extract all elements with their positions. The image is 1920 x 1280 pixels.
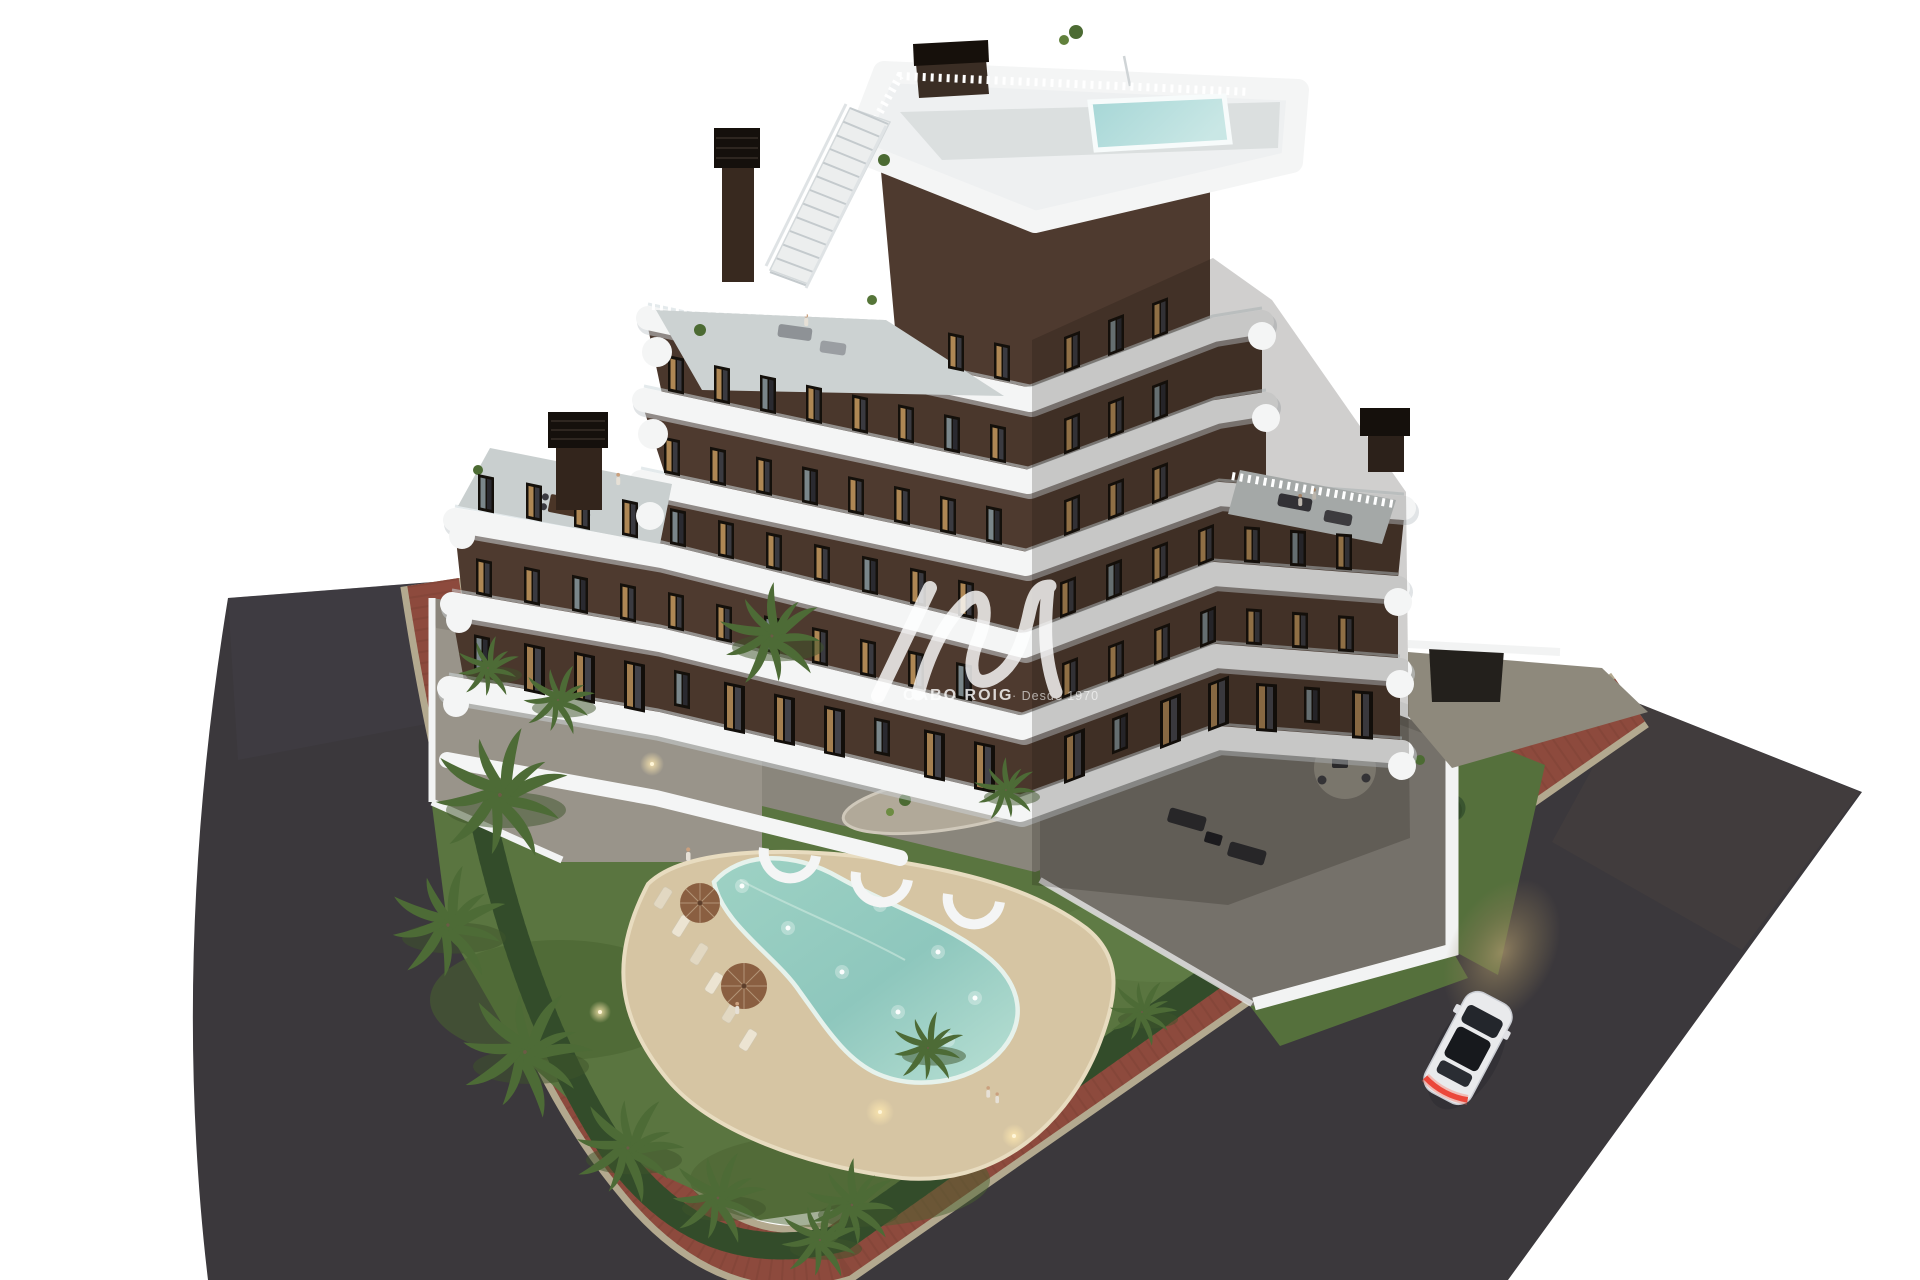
window: [824, 705, 845, 757]
window: [990, 424, 1006, 463]
window: [622, 499, 638, 538]
roof-plant: [878, 154, 890, 166]
window: [774, 694, 795, 746]
watermark-brand: CABO ROIG: [903, 687, 1013, 704]
window: [710, 447, 726, 486]
window: [664, 437, 680, 476]
window: [724, 682, 745, 734]
window: [806, 385, 822, 424]
window: [624, 660, 645, 712]
window: [860, 639, 876, 678]
window: [620, 583, 636, 622]
window: [572, 575, 588, 614]
scene-svg: CABO ROIG · Desde 1970: [0, 0, 1920, 1280]
window: [674, 670, 690, 709]
window: [814, 544, 830, 583]
window: [478, 474, 494, 513]
parasol: [680, 883, 720, 923]
window: [898, 404, 914, 443]
roof-plant: [1059, 35, 1069, 45]
window: [668, 355, 684, 394]
window: [894, 486, 910, 525]
window: [476, 558, 492, 597]
window: [852, 394, 868, 433]
window: [760, 375, 776, 414]
window: [994, 342, 1010, 381]
parasol: [721, 963, 767, 1009]
window: [874, 717, 890, 756]
window: [714, 365, 730, 404]
rooftop-pool: [1090, 96, 1230, 150]
window: [948, 332, 964, 371]
window: [756, 456, 772, 495]
garage-ramp: [1429, 647, 1504, 702]
window: [924, 729, 945, 781]
render-canvas: CABO ROIG · Desde 1970: [0, 0, 1920, 1280]
window: [718, 520, 734, 559]
window: [944, 414, 960, 453]
window: [526, 482, 542, 521]
window: [986, 505, 1002, 544]
window: [766, 532, 782, 571]
chimney-b: [548, 412, 608, 510]
window: [670, 508, 686, 547]
window: [848, 476, 864, 515]
window: [802, 466, 818, 505]
roof-plant: [1069, 25, 1083, 39]
window: [668, 592, 684, 631]
roof-bulkhead-top: [913, 40, 989, 66]
window: [524, 566, 540, 605]
window: [940, 496, 956, 535]
window: [862, 556, 878, 595]
watermark-tagline: · Desde 1970: [1012, 689, 1099, 703]
